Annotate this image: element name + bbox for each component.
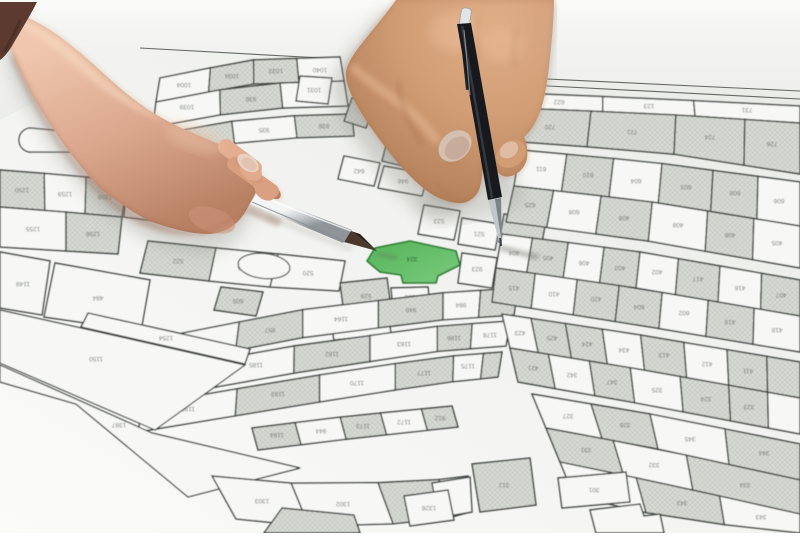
svg-text:409: 409 — [618, 214, 629, 221]
svg-text:721: 721 — [626, 128, 637, 135]
svg-text:415: 415 — [508, 284, 519, 291]
svg-text:402: 402 — [651, 268, 662, 275]
svg-text:1387: 1387 — [111, 421, 126, 428]
svg-text:603: 603 — [680, 183, 691, 190]
svg-text:123: 123 — [643, 102, 654, 109]
svg-text:413: 413 — [658, 351, 669, 358]
svg-text:608: 608 — [568, 208, 579, 215]
svg-text:418: 418 — [771, 326, 782, 333]
svg-text:408: 408 — [672, 221, 683, 228]
svg-text:1259: 1259 — [57, 190, 72, 197]
svg-text:720: 720 — [544, 123, 555, 130]
svg-text:326: 326 — [619, 421, 630, 428]
svg-text:611: 611 — [535, 165, 546, 172]
svg-text:608: 608 — [729, 189, 740, 196]
svg-text:345: 345 — [684, 435, 695, 442]
svg-text:642: 642 — [353, 167, 364, 174]
svg-text:1039: 1039 — [179, 103, 194, 110]
svg-text:605: 605 — [232, 297, 243, 304]
svg-text:625: 625 — [524, 201, 535, 208]
svg-text:529: 529 — [360, 292, 371, 299]
svg-text:944: 944 — [315, 427, 326, 434]
svg-text:1178: 1178 — [483, 331, 497, 338]
svg-text:1040: 1040 — [312, 66, 327, 73]
svg-text:935: 935 — [258, 126, 269, 133]
svg-text:1302: 1302 — [335, 500, 350, 507]
svg-text:1033: 1033 — [268, 67, 283, 74]
svg-text:521: 521 — [473, 230, 484, 237]
svg-text:1150: 1150 — [89, 355, 103, 362]
svg-text:344: 344 — [758, 449, 769, 456]
svg-text:411: 411 — [742, 367, 753, 374]
svg-text:1185: 1185 — [249, 361, 263, 368]
svg-text:1149: 1149 — [16, 280, 30, 287]
svg-text:405: 405 — [771, 239, 782, 246]
svg-text:520: 520 — [302, 269, 313, 276]
svg-text:1186: 1186 — [447, 334, 461, 341]
svg-text:406: 406 — [724, 231, 735, 238]
svg-text:324: 324 — [406, 255, 417, 262]
svg-text:434: 434 — [618, 346, 629, 353]
svg-text:416: 416 — [734, 284, 745, 291]
svg-text:731: 731 — [741, 106, 752, 113]
svg-text:323: 323 — [743, 403, 754, 410]
svg-text:923: 923 — [471, 265, 482, 272]
svg-text:1177: 1177 — [417, 369, 431, 376]
svg-text:484: 484 — [92, 294, 103, 301]
svg-text:610: 610 — [582, 171, 593, 178]
svg-text:1256: 1256 — [85, 230, 100, 237]
svg-text:957: 957 — [264, 326, 275, 333]
svg-text:324: 324 — [700, 395, 711, 402]
svg-text:423: 423 — [514, 329, 525, 336]
svg-text:425: 425 — [546, 334, 557, 341]
svg-text:403: 403 — [614, 264, 625, 271]
svg-text:334: 334 — [739, 481, 750, 488]
svg-text:1326: 1326 — [421, 504, 436, 511]
svg-text:1250: 1250 — [14, 186, 29, 193]
svg-text:1173: 1173 — [356, 422, 370, 429]
svg-text:347: 347 — [606, 378, 617, 385]
svg-text:1004: 1004 — [176, 81, 191, 88]
svg-text:1303: 1303 — [254, 497, 269, 504]
svg-text:1172: 1172 — [397, 418, 411, 425]
svg-text:1164: 1164 — [270, 431, 284, 438]
svg-text:1162: 1162 — [325, 350, 339, 357]
svg-text:1170: 1170 — [350, 379, 364, 386]
svg-text:606: 606 — [773, 197, 784, 204]
svg-text:421: 421 — [527, 364, 538, 371]
svg-text:936: 936 — [245, 95, 256, 102]
svg-text:325: 325 — [651, 386, 662, 393]
svg-text:948: 948 — [405, 306, 416, 313]
svg-text:1163: 1163 — [397, 340, 411, 347]
svg-text:301: 301 — [588, 486, 599, 493]
svg-text:312: 312 — [498, 481, 509, 488]
svg-text:724: 724 — [704, 133, 715, 140]
svg-text:984: 984 — [455, 301, 466, 308]
svg-text:343: 343 — [755, 513, 766, 520]
svg-text:420: 420 — [590, 295, 601, 302]
svg-text:405: 405 — [542, 254, 553, 261]
svg-text:1193: 1193 — [271, 390, 285, 397]
svg-text:1175: 1175 — [461, 362, 475, 369]
svg-text:1254: 1254 — [158, 334, 173, 341]
svg-text:1034: 1034 — [224, 72, 239, 79]
svg-text:424: 424 — [581, 340, 592, 347]
svg-text:417: 417 — [692, 275, 703, 282]
svg-text:342: 342 — [566, 371, 577, 378]
svg-text:331: 331 — [580, 446, 591, 453]
svg-text:726: 726 — [766, 140, 777, 147]
svg-text:1255: 1255 — [25, 225, 40, 232]
svg-text:406: 406 — [578, 259, 589, 266]
svg-text:342: 342 — [676, 499, 687, 506]
svg-text:412: 412 — [701, 360, 712, 367]
svg-text:1164: 1164 — [334, 315, 348, 322]
svg-text:622: 622 — [553, 98, 564, 105]
svg-text:938: 938 — [318, 122, 329, 129]
svg-text:604: 604 — [630, 177, 641, 184]
svg-text:419: 419 — [724, 318, 735, 325]
svg-text:604: 604 — [633, 303, 644, 310]
svg-text:327: 327 — [562, 412, 573, 419]
svg-text:332: 332 — [648, 461, 659, 468]
svg-text:602: 602 — [678, 309, 689, 316]
svg-text:912: 912 — [434, 414, 445, 421]
svg-text:410: 410 — [548, 290, 559, 297]
svg-text:1031: 1031 — [306, 86, 321, 93]
svg-text:407: 407 — [775, 291, 786, 298]
svg-text:522: 522 — [172, 257, 183, 264]
